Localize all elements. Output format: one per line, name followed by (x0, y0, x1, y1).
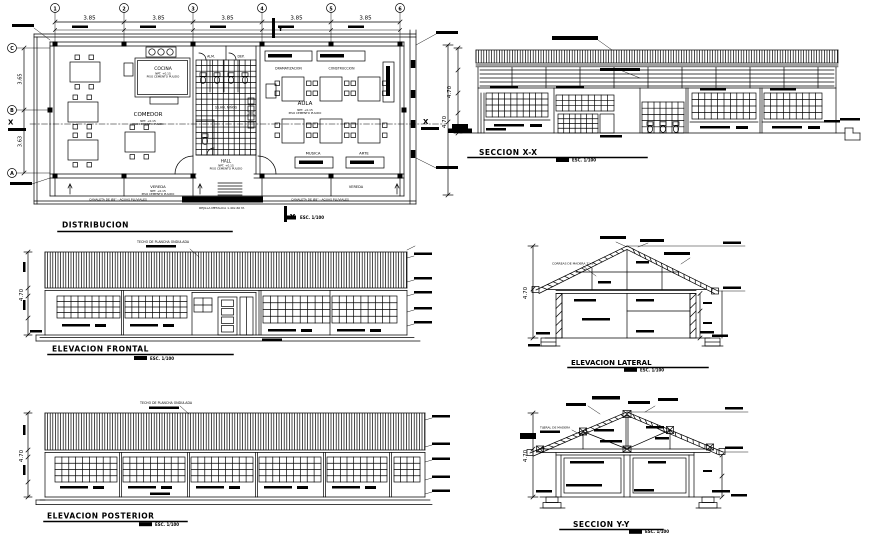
syy-detail (543, 503, 561, 509)
table (358, 119, 380, 143)
annotation-bar (139, 522, 152, 526)
plan-title: DISTRIBUCION (62, 221, 129, 230)
chair (275, 133, 280, 138)
el-line (681, 258, 690, 264)
sxx-line (598, 40, 612, 50)
column-hatch (690, 320, 696, 326)
chair (313, 81, 318, 86)
el-title: ELEVACION LATERAL (571, 359, 652, 367)
front-elevation-linework (23, 245, 432, 360)
ep-roof-note: TECHO DE PLANCHA ONDULADA (139, 401, 193, 405)
window-grid (556, 95, 614, 111)
stove-burner (158, 49, 164, 55)
chair (345, 133, 350, 138)
annotation-bar (808, 126, 820, 129)
room-label-dep: DEP. (238, 55, 245, 59)
syy-detail (702, 497, 714, 503)
annotation-bar (582, 318, 610, 321)
ep-title: ELEVACION POSTERIOR (47, 512, 154, 521)
annotation-bar (196, 486, 224, 489)
table (282, 119, 304, 143)
ef-line (407, 246, 415, 250)
chord-hatch (559, 279, 564, 281)
toilet-tank (214, 73, 220, 77)
annotation-bar (8, 128, 26, 131)
annotation-bar (824, 120, 840, 123)
column-hatch (556, 303, 562, 309)
el-line (638, 243, 648, 247)
chord-hatch (542, 287, 547, 289)
syy-line (588, 406, 600, 414)
chair (130, 155, 135, 160)
chord-hatch (548, 445, 554, 447)
annotation-bar (646, 426, 664, 429)
section-xx-linework (448, 36, 860, 162)
column-hatch (556, 328, 562, 334)
annotation-bar (432, 443, 450, 446)
grid-bubble-label: 2 (122, 6, 125, 12)
annotation-bar (272, 18, 275, 38)
chord-hatch (615, 417, 618, 419)
annotation-bar (301, 329, 312, 332)
annotation-bar (210, 26, 226, 29)
annotation-bar (95, 324, 106, 327)
table (282, 77, 304, 101)
annotation-bar (658, 398, 678, 401)
chair (345, 81, 350, 86)
chord-hatch (716, 450, 717, 454)
table (70, 62, 100, 82)
annotation-bar (723, 242, 741, 245)
annotation-bar (731, 494, 747, 497)
rear-elevation: TECHO DE PLANCHA ONDULADA 4.70 ELEVACION… (19, 401, 450, 527)
annotation-bar (337, 329, 365, 332)
chord-hatch (553, 282, 558, 284)
annotation-bar (528, 344, 540, 347)
annotation-bar (268, 329, 296, 332)
column-hatch (690, 294, 696, 300)
annotation-bar (486, 128, 506, 131)
ep-line (425, 492, 432, 494)
annotation-bar (770, 88, 796, 91)
annotation-bar (624, 368, 637, 372)
chair (351, 123, 356, 128)
stove-burner (149, 49, 155, 55)
annotation-bar (398, 42, 403, 47)
chair (89, 85, 94, 90)
annotation-bar (260, 174, 265, 179)
annotation-bar (634, 489, 654, 492)
chair (89, 55, 94, 60)
annotation-bar (540, 431, 560, 434)
chord-hatch (604, 257, 607, 259)
ep-line (425, 445, 432, 447)
chord-hatch (621, 415, 624, 417)
ep-line (425, 460, 432, 462)
annotation-bar (592, 396, 620, 400)
chair (307, 123, 312, 128)
chair (73, 125, 78, 130)
annotation-bar (53, 42, 58, 47)
toilet-tank (200, 73, 206, 77)
annotation-bar (149, 407, 179, 410)
el-scale: ESC. 1/100 (640, 368, 664, 373)
door-swing-arc (175, 156, 193, 174)
annotation-bar (432, 476, 450, 479)
table (68, 102, 98, 122)
plan-fixture (248, 106, 254, 112)
annotation-bar (146, 245, 176, 248)
annotation-bar (566, 484, 602, 487)
ef-line (407, 280, 414, 282)
chair (383, 133, 388, 138)
area-label-arte: ARTE (359, 151, 369, 156)
chord-hatch (566, 438, 571, 440)
plan-line (416, 158, 436, 168)
annotation-bar (329, 174, 334, 179)
grid-bubble-label: 1 (53, 6, 56, 12)
annotation-bar (570, 461, 604, 464)
rear-elevation-linework (23, 406, 450, 526)
area-label-musica: MUSICA (306, 151, 321, 156)
room-label-alm: ALM. (207, 55, 215, 59)
chord-hatch (572, 435, 577, 437)
note-canaleta-left: CANALETA DE Ø8" - AGUAS PLUVIALES (89, 197, 147, 202)
chair (383, 123, 388, 128)
stove-burner (167, 49, 173, 55)
toilet-tank (660, 122, 666, 126)
annotation-bar (122, 174, 127, 179)
annotation-bar (629, 530, 642, 534)
annotation-bar (636, 261, 649, 264)
annotation-bar (414, 253, 432, 256)
annotation-bar (10, 182, 32, 185)
annotation-bar (712, 335, 728, 338)
annotation-bar (640, 239, 664, 242)
annotation-bar (332, 486, 360, 489)
annotation-bar (703, 470, 712, 472)
door-swing-arc (199, 53, 206, 60)
ep-scale: ESC. 1/100 (155, 522, 179, 527)
annotation-bar (723, 287, 741, 290)
section-xx: 4.70 SECCION X-X ESC. 1/100 (447, 36, 860, 163)
chair (313, 91, 318, 96)
room-label-aula: AULA (298, 101, 313, 107)
annotation-bar (436, 31, 458, 34)
annotation-bar (229, 486, 240, 489)
section-marker-x-left: X (8, 119, 14, 127)
ef-title: ELEVACION FRONTAL (52, 345, 149, 354)
door-swing-arc (207, 148, 214, 155)
chord-hatch (564, 276, 569, 278)
annotation-bar (490, 86, 518, 89)
door-panel (222, 326, 234, 333)
door-panel (222, 317, 234, 324)
syy-title: SECCION Y-Y (573, 520, 630, 529)
annotation-bar (128, 486, 156, 489)
ef-line (407, 310, 414, 312)
ef-dim: 4.70 (19, 288, 25, 301)
door-swing-arc (258, 156, 276, 174)
annotation-bar (411, 150, 416, 158)
syy-detail (546, 497, 558, 503)
note-piso-cocina: PISO CEMENTO PULIDO (147, 75, 180, 79)
ep-dim: 4.70 (19, 449, 25, 462)
table (358, 77, 380, 101)
door-leaf (218, 297, 237, 335)
annotation-bar (182, 197, 263, 203)
annotation-bar (536, 490, 552, 493)
annotation-bar (600, 236, 626, 239)
annotation-bar (348, 26, 364, 29)
section-marker-x-right: X (423, 118, 429, 126)
plan-scale: ESC. 1/100 (300, 215, 324, 220)
annotation-bar (370, 329, 381, 332)
annotation-bar (594, 429, 614, 432)
annotation-bar (284, 206, 287, 222)
plan-line (416, 34, 436, 45)
el-line (539, 250, 627, 294)
door-panel (222, 300, 234, 307)
chord-hatch (597, 425, 601, 427)
grid-bubble-label: B (10, 108, 14, 114)
drawing-sheet: 1234563.853.853.853.853.85CBA3.653.63 CO… (0, 0, 870, 556)
annotation-bar (700, 126, 730, 129)
room-label-sshh: SS.HH. NIÑOS (215, 105, 237, 110)
chair (73, 95, 78, 100)
chair (75, 55, 80, 60)
column-hatch (690, 311, 696, 317)
syy-line (645, 406, 655, 412)
annotation-bar (840, 118, 860, 121)
chair (275, 123, 280, 128)
annotation-bar (628, 401, 650, 404)
chair (73, 133, 78, 138)
annotation-bar (494, 124, 524, 127)
chord-hatch (570, 274, 575, 276)
annotation-bar (60, 486, 88, 489)
note-piso-comedor: PISO CEMENTO PULIDO (132, 122, 165, 126)
annotation-bar (636, 330, 654, 333)
annotation-bar (598, 281, 611, 284)
annotation-bar (552, 36, 598, 40)
door-panel (222, 309, 234, 316)
row-dim-label: 3.65 (18, 73, 24, 84)
annotation-bar (703, 322, 712, 324)
syy-scale: ESC. 1/100 (645, 529, 669, 534)
col-dim-label: 3.85 (152, 16, 165, 22)
chair (307, 91, 312, 96)
annotation-bar (320, 54, 344, 58)
chord-hatch (587, 265, 591, 267)
annotation-bar (62, 324, 90, 327)
column-hatch (556, 320, 562, 326)
table (320, 77, 342, 101)
chord-hatch (599, 260, 603, 262)
floor-plan-distribucion: 1234563.853.853.853.853.85CBA3.653.63 CO… (8, 4, 459, 232)
column-hatch (556, 311, 562, 317)
annotation-bar (411, 120, 416, 128)
annotation-bar (411, 60, 416, 68)
annotation-bar (636, 299, 654, 302)
section-marker-y-bottom: Y (289, 213, 296, 221)
chord-hatch (609, 420, 612, 422)
ef-line (407, 324, 414, 326)
ef-line (407, 294, 414, 296)
grid-bubble-label: 3 (191, 6, 194, 12)
chair (87, 125, 92, 130)
grid-bubble-label: 6 (398, 6, 402, 12)
annotation-bar (421, 127, 439, 130)
col-dim-label: 3.85 (83, 16, 96, 22)
el-line (616, 242, 627, 247)
annotation-bar (432, 490, 450, 493)
annotation-bar (23, 425, 26, 435)
annotation-bar (350, 161, 374, 165)
annotation-bar (520, 433, 536, 439)
annotation-bar (600, 440, 622, 443)
annotation-bar (299, 161, 323, 165)
chord-hatch (560, 440, 565, 442)
annotation-bar (264, 486, 292, 489)
annotation-bar (432, 415, 450, 418)
annotation-bar (414, 291, 432, 294)
annotation-bar (329, 42, 334, 47)
column-hatch (690, 303, 696, 309)
plan-line (32, 178, 50, 184)
front-elevation: TECHO DE PLANCHA ONDULADA 4.70 ELEVACION… (19, 240, 432, 361)
annotation-bar (365, 486, 376, 489)
door-opening (600, 114, 614, 133)
chair (87, 133, 92, 138)
annotation-bar (161, 486, 172, 489)
annotation-bar (436, 166, 458, 169)
chord-hatch (687, 437, 688, 441)
annotation-bar (268, 54, 292, 58)
annotation-bar (648, 461, 666, 464)
annotation-bar (736, 126, 748, 129)
plan-fixture (150, 97, 178, 104)
chair (313, 123, 318, 128)
grid-bubble-label: 4 (260, 6, 264, 12)
sxx-title: SECCION X-X (479, 148, 538, 157)
col-dim-label: 3.85 (290, 16, 303, 22)
annotation-bar (772, 126, 802, 129)
chord-hatch (582, 268, 586, 270)
plan-fixture (266, 84, 276, 98)
ef-line (407, 256, 414, 258)
label-vereda-right: VEREDA (349, 185, 364, 189)
annotation-bar (664, 252, 690, 255)
annotation-bar (23, 262, 26, 272)
plan-fixture (248, 114, 254, 120)
chair (351, 133, 356, 138)
row-dim-label: 3.63 (18, 136, 24, 147)
chair (351, 91, 356, 96)
syy-dim: 4.70 (523, 449, 529, 462)
plan-right-dim: 4.70 (442, 115, 448, 128)
annotation-bar (536, 332, 550, 335)
chair (307, 133, 312, 138)
chair (351, 81, 356, 86)
annotation-bar (93, 486, 104, 489)
table (125, 132, 155, 152)
column-hatch (690, 328, 696, 334)
annotation-bar (556, 86, 584, 89)
annotation-bar (297, 486, 308, 489)
chord-hatch (610, 254, 613, 256)
table (68, 140, 98, 160)
annotation-bar (191, 42, 196, 47)
sxx-scale: ESC. 1/100 (572, 158, 596, 163)
section-yy-linework (520, 396, 748, 534)
annotation-bar (712, 490, 730, 493)
annotation-bar (72, 26, 88, 29)
annotation-bar (411, 90, 416, 98)
section-marker-y-top: Y (277, 25, 284, 33)
ef-scale: ESC. 1/100 (150, 356, 174, 361)
annotation-bar (566, 403, 586, 406)
annotation-bar (191, 174, 196, 179)
chair (313, 133, 318, 138)
note-rejilla: REJILLA METALICA 1.40x.60 M. (199, 206, 245, 210)
annotation-bar (574, 299, 596, 302)
plan-fixture (124, 63, 133, 76)
annotation-bar (703, 302, 712, 304)
table (320, 119, 342, 143)
col-dim-label: 3.85 (359, 16, 372, 22)
chair (87, 95, 92, 100)
annotation-bar (53, 174, 58, 179)
section-yy: TIJERAL DE MADERA 4.70 SECCION Y-Y ESC. … (520, 396, 748, 534)
chord-hatch (621, 249, 624, 251)
note-piso-vereda: PISO CEMENTO PULIDO (142, 192, 175, 196)
el-line (583, 266, 596, 276)
area-label-dramatizacion: DRAMATIZACION (275, 67, 302, 71)
ep-line (425, 478, 432, 480)
chair (144, 155, 149, 160)
annotation-bar (556, 158, 569, 162)
syy-note-tijeral: TIJERAL DE MADERA (539, 426, 571, 430)
annotation-bar (262, 339, 282, 342)
annotation-bar (600, 135, 622, 138)
grid-bubble-label: A (10, 171, 14, 177)
chair (345, 123, 350, 128)
ep-line (425, 418, 432, 420)
chair (73, 163, 78, 168)
annotation-bar (134, 356, 147, 360)
el-dim: 4.70 (523, 286, 529, 299)
chord-hatch (616, 252, 619, 254)
annotation-bar (23, 465, 26, 475)
annotation-bar (140, 26, 156, 29)
chord-hatch (547, 285, 552, 287)
el-note-correas: CORREAS DE MADERA 2"x3" (552, 262, 595, 266)
door-swing-arc (229, 53, 236, 60)
annotation-bar (163, 324, 174, 327)
area-label-construccion: CONSTRUCCION (329, 67, 356, 71)
annotation-bar (655, 437, 669, 440)
note-piso-aula: PISO CEMENTO PULIDO (289, 111, 322, 115)
annotation-bar (260, 42, 265, 47)
chord-hatch (554, 443, 559, 445)
room-label-comedor: COMEDOR (134, 112, 163, 118)
annotation-bar (30, 330, 42, 333)
side-elevation-linework (528, 236, 745, 372)
annotation-bar (12, 24, 34, 27)
annotation-bar (432, 458, 450, 461)
col-dim-label: 3.85 (221, 16, 234, 22)
